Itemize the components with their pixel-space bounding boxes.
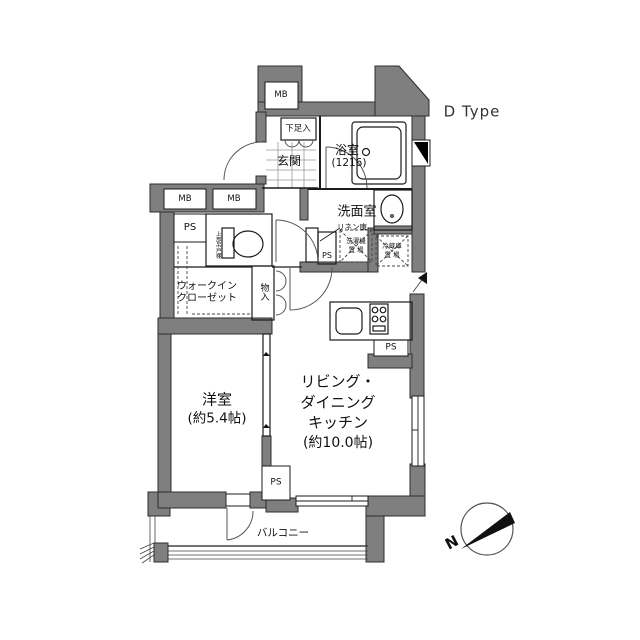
bathtub-icon	[352, 122, 406, 184]
label-washroom: 洗面室	[337, 206, 376, 219]
label-ps-washroom: PS	[322, 252, 332, 260]
label-storage: 物入	[259, 283, 268, 301]
floorplan-drawing	[0, 0, 640, 640]
label-ps-bottom: PS	[270, 479, 281, 488]
label-mb-top: MB	[274, 91, 287, 100]
label-mb-left-1: MB	[178, 195, 191, 204]
label-walk-in-closet-1: ウォークイン	[177, 282, 237, 292]
label-bathroom-size: (1216)	[332, 158, 367, 169]
floor-plan-canvas: D Type MB MB MB 下足入 玄関 浴室 (1216) 洗面室 リネン…	[0, 0, 640, 640]
storage-bifold-door	[276, 271, 286, 291]
plan-type-title: D Type	[444, 105, 501, 120]
label-entrance: 玄関	[277, 155, 301, 167]
label-linen-closet: リネン庫	[337, 223, 367, 231]
label-ldk-1: リビング・	[300, 375, 375, 390]
entry-door-arc	[224, 142, 262, 180]
label-bathroom: 浴室	[335, 144, 359, 156]
label-upper-cabinet: 上部吊戸棚	[214, 231, 220, 259]
washroom-door-arc	[276, 220, 318, 262]
label-shoe-cabinet: 下足入	[285, 125, 311, 134]
label-walk-in-closet-2: クローゼット	[177, 294, 237, 304]
toilet-tank	[222, 228, 234, 258]
label-mb-left-2: MB	[227, 195, 240, 204]
label-ps-left: PS	[184, 223, 196, 233]
label-western-room-size: (約5.4帖)	[187, 412, 246, 426]
label-fridge-1: 冷蔵庫	[382, 243, 402, 250]
label-ldk-size: (約10.0帖)	[303, 436, 373, 450]
linen-closet-box	[306, 228, 318, 262]
room-lines	[174, 116, 418, 506]
label-fridge-2: 置 場	[384, 252, 399, 259]
ldk-door-arc	[290, 268, 332, 310]
balcony-door-arc	[227, 511, 253, 540]
stove-icon	[370, 304, 388, 334]
label-ps-kitchen: PS	[385, 344, 396, 353]
kitchen-sink-icon	[336, 308, 362, 334]
balcony-railing	[140, 516, 368, 563]
label-western-room: 洋室	[202, 393, 232, 408]
label-washer-1: 洗濯機	[346, 238, 366, 245]
label-ldk-3: キッチン	[308, 416, 368, 431]
label-washer-2: 置 場	[348, 247, 363, 254]
vanity-counter	[374, 190, 412, 230]
washbasin-icon	[381, 195, 403, 223]
compass-icon	[461, 503, 515, 555]
label-balcony: バルコニー	[257, 528, 309, 539]
sliding-partition	[263, 334, 270, 436]
label-ldk-2: ダイニング	[300, 396, 375, 411]
toilet-icon	[233, 231, 263, 257]
